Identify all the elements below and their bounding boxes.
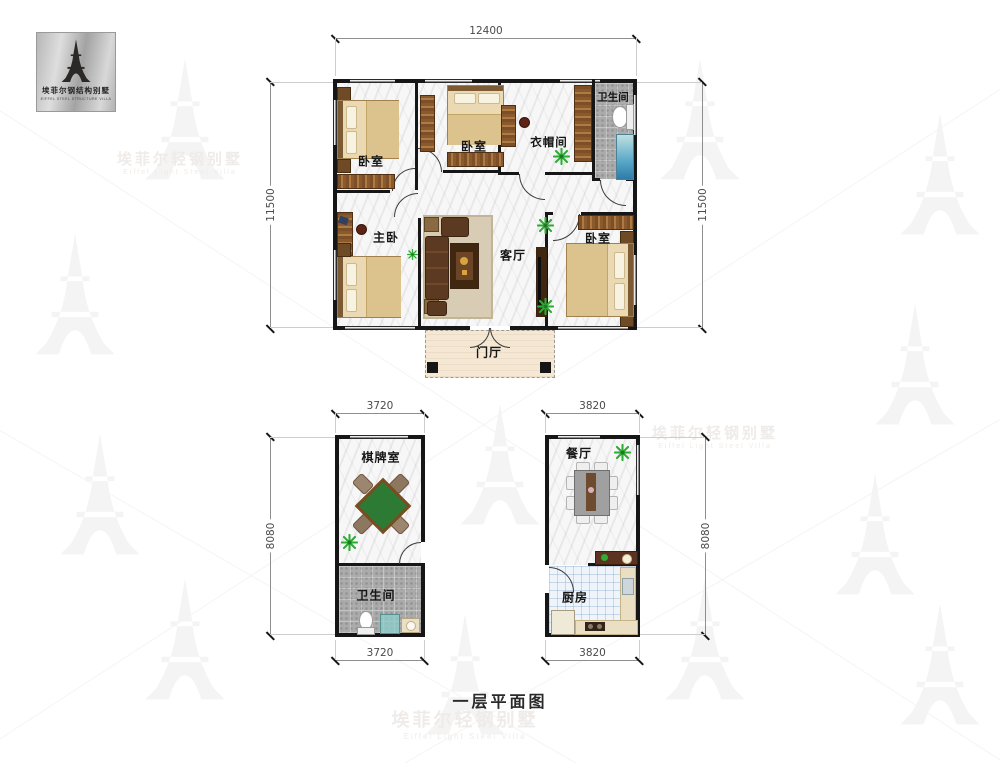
room-label: 卧室 <box>358 153 384 170</box>
window <box>558 435 600 439</box>
nightstand <box>337 159 351 173</box>
dimension-annexleft-top: 3720 <box>335 413 425 414</box>
dining-set <box>566 462 616 522</box>
fridge <box>551 610 575 635</box>
chair <box>356 224 367 235</box>
dimension-annexleft-left: 8080 <box>270 437 271 635</box>
wall <box>636 435 640 445</box>
mahjong-set <box>352 475 408 531</box>
eiffel-tower-icon <box>59 38 93 84</box>
porch-column <box>540 362 551 373</box>
company-logo: 埃菲尔钢结构别墅 EIFFEL STEEL STRUCTURE VILLA <box>36 32 116 112</box>
window <box>345 326 415 330</box>
wall <box>415 79 418 190</box>
dimension-annexright-bottom: 3820 <box>545 660 640 661</box>
wall <box>415 326 470 330</box>
sink <box>401 618 420 633</box>
wall <box>418 218 421 326</box>
dining-table <box>574 470 610 516</box>
wall <box>395 79 425 83</box>
ottoman <box>427 301 447 316</box>
coffee-table <box>450 243 479 289</box>
room-label: 门厅 <box>476 344 502 361</box>
room-label: 卧室 <box>461 138 487 155</box>
dimension-main-right: 11500 <box>702 82 703 328</box>
plant-icon <box>553 148 570 165</box>
porch-column <box>427 362 438 373</box>
plant-icon <box>341 534 358 551</box>
wall <box>335 435 339 637</box>
shower <box>616 134 634 180</box>
wall <box>545 435 549 565</box>
stove <box>585 622 605 631</box>
room-label: 客厅 <box>500 247 526 264</box>
sideboard <box>595 551 638 565</box>
dimension-main-top: 12400 <box>335 38 637 39</box>
wardrobe <box>574 85 592 162</box>
window <box>350 79 395 83</box>
wall <box>592 178 600 181</box>
bed <box>337 100 399 159</box>
wall <box>498 172 519 175</box>
cabinet <box>420 95 435 152</box>
room-label: 卧室 <box>585 230 611 247</box>
side-table <box>424 217 439 232</box>
window <box>558 326 628 330</box>
plant-icon <box>537 217 554 234</box>
bed <box>337 256 401 318</box>
wall <box>545 593 549 637</box>
nightstand <box>337 243 351 257</box>
wall <box>600 435 640 439</box>
wall <box>443 170 500 173</box>
sheet-title: 一层平面图 <box>452 688 547 712</box>
window <box>350 435 408 439</box>
nightstand <box>337 87 351 101</box>
wall <box>333 326 345 330</box>
wall <box>510 326 558 330</box>
armchair <box>441 217 469 237</box>
floor-plan-sheet: 埃菲尔轻钢别墅Eiffel Light Steel Villa 埃菲尔轻钢别墅E… <box>0 0 1000 763</box>
room-label: 卫生间 <box>356 587 395 604</box>
wall <box>592 79 595 181</box>
room-label: 棋牌室 <box>361 449 400 466</box>
wall <box>421 435 425 542</box>
wardrobe <box>578 215 634 230</box>
plant-icon <box>614 444 631 461</box>
wall <box>633 79 637 95</box>
logo-brand-en: EIFFEL STEEL STRUCTURE VILLA <box>41 97 112 101</box>
wall <box>545 212 553 215</box>
wall <box>600 79 637 83</box>
bed <box>447 85 504 145</box>
bed <box>566 243 634 317</box>
wardrobe <box>337 174 395 189</box>
window <box>636 445 640 495</box>
plant-icon <box>407 247 418 258</box>
dimension-main-left: 11500 <box>270 82 271 328</box>
dresser <box>501 105 516 147</box>
wall <box>472 79 560 83</box>
logo-brand-cn: 埃菲尔钢结构别墅 <box>42 85 110 96</box>
room-label: 餐厅 <box>566 445 592 462</box>
wall <box>636 495 640 637</box>
stool <box>519 117 530 128</box>
kitchen-sink <box>622 578 634 595</box>
room-label: 主卧 <box>373 229 399 246</box>
toilet-tank <box>357 627 375 635</box>
shower <box>380 614 400 634</box>
dimension-annexright-right: 8080 <box>705 437 706 635</box>
room-label: 卫生间 <box>597 90 629 105</box>
toilet-tank <box>626 104 634 130</box>
dimension-annexleft-bottom: 3720 <box>335 660 425 661</box>
wall <box>545 172 592 175</box>
sofa <box>425 236 449 300</box>
plant-icon <box>537 298 554 315</box>
kitchen-counter <box>620 567 636 627</box>
wall <box>333 190 390 193</box>
plans-layer: 12400 11500 11500 <box>0 0 1000 763</box>
room-label: 厨房 <box>562 589 588 606</box>
dimension-annexright-top: 3820 <box>545 413 640 414</box>
window <box>425 79 472 83</box>
wall <box>421 564 425 637</box>
